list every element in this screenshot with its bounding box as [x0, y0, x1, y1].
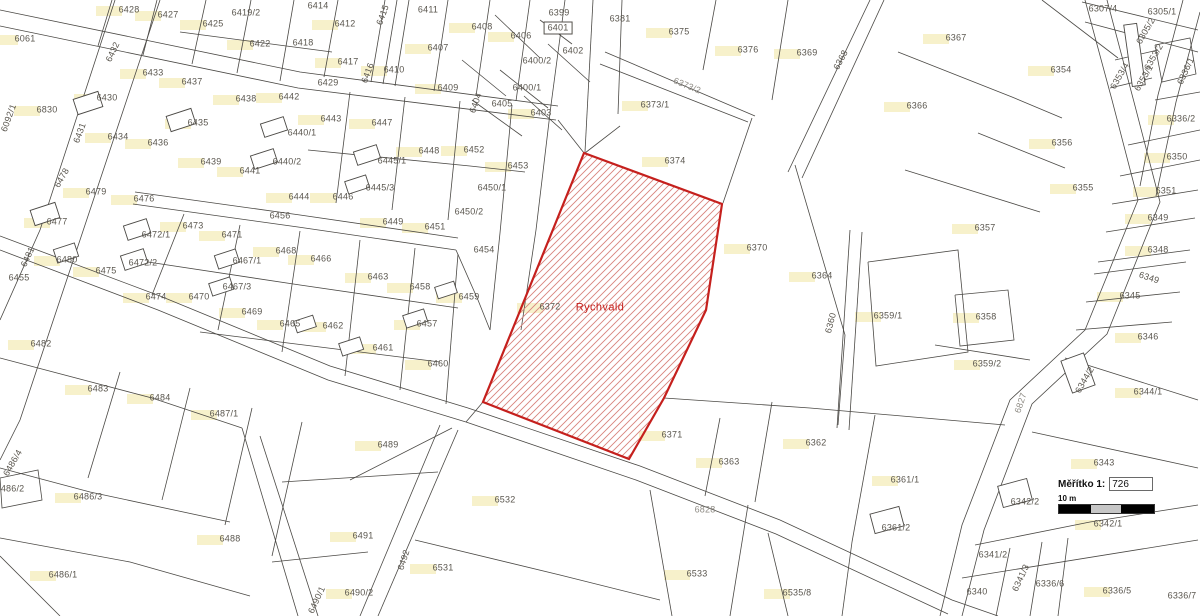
parcel-number-label: 6416	[360, 62, 376, 85]
parcel-number-label: 6092/1	[0, 103, 18, 133]
parcel-number-label: 6469	[242, 308, 263, 317]
parcel-number-label: 6478	[53, 167, 71, 190]
parcel-number-label: 6366	[907, 102, 928, 111]
parcel-number-label: 6305/2	[1135, 16, 1157, 45]
parcel-number-label: 6336/5	[1103, 587, 1132, 596]
parcel-number-label: 6463	[368, 273, 389, 282]
parcel-number-label: 6472/2	[129, 259, 158, 268]
scale-bar	[1058, 504, 1155, 514]
parcel-number-label: 6360	[824, 312, 838, 334]
scale-bar-segment	[1091, 505, 1121, 513]
parcel-number-label: 6456	[270, 212, 291, 221]
parcel-number-label: 6462	[323, 322, 344, 331]
parcel-number-label: 6446	[333, 193, 354, 202]
parcel-number-label: 6453	[508, 162, 529, 171]
parcel-number-label: 6344/1	[1134, 388, 1163, 397]
parcel-number-label: 6405	[492, 100, 513, 109]
scale-label: Měřítko 1:	[1058, 479, 1105, 490]
parcel-number-label: 6440/1	[288, 129, 317, 138]
parcel-number-label: 6471	[222, 231, 243, 240]
parcel-number-label: 6445/3	[366, 184, 395, 193]
parcel-number-label: 6344/2	[1074, 365, 1096, 394]
parcel-number-label: 6454	[474, 246, 495, 255]
parcel-number-label: 6336/7	[1168, 592, 1197, 601]
parcel-number-label: 6443	[321, 115, 342, 124]
parcel-number-label: 6363	[719, 458, 740, 467]
parcel-number-label: 6414	[308, 2, 329, 11]
parcel-number-label: 6345	[1120, 292, 1141, 301]
parcel-number-label: 6361/1	[891, 476, 920, 485]
parcel-number-label: 6415	[375, 4, 391, 27]
parcel-number-label: 6061	[15, 35, 36, 44]
parcel-number-label: 6349	[1148, 214, 1169, 223]
parcel-number-label: 6441	[240, 167, 261, 176]
parcel-number-label: 6401	[544, 22, 573, 35]
parcel-number-label: 6430	[97, 94, 118, 103]
parcel-number-label: 6460	[428, 360, 449, 369]
parcel-number-label: 6435	[188, 119, 209, 128]
parcel-number-label: 6491	[353, 532, 374, 541]
parcel-number-label: 6368	[832, 49, 850, 72]
parcel-number-label: 6482	[31, 340, 52, 349]
parcel-number-label: 6490/2	[345, 589, 374, 598]
parcel-number-label: 6427	[158, 11, 179, 20]
parcel-number-label: 6472/1	[142, 231, 171, 240]
parcel-number-label: 6489	[378, 441, 399, 450]
parcel-number-label: 6455	[9, 274, 30, 283]
parcel-number-label: 6458	[410, 283, 431, 292]
parcel-number-label: 6417	[338, 58, 359, 67]
parcel-number-label: 6419/2	[232, 9, 261, 18]
parcel-number-label: 6406	[511, 32, 532, 41]
parcel-number-label: 6373/2	[672, 76, 702, 95]
parcel-number-label: 6431	[72, 122, 88, 145]
parcel-number-label: 6381	[610, 15, 631, 24]
parcel-number-label: 6400/1	[513, 84, 542, 93]
parcel-number-label: 6371	[662, 431, 683, 440]
parcel-number-label: 6305/1	[1148, 8, 1177, 17]
parcel-number-label: 6372	[540, 303, 561, 312]
parcel-number-label: 6364	[812, 272, 833, 281]
parcel-number-label: 6408	[472, 23, 493, 32]
parcel-number-label: 6376	[738, 46, 759, 55]
scale-value-input[interactable]: 726	[1109, 477, 1153, 491]
parcel-number-label: 6418	[293, 39, 314, 48]
parcel-number-label: 6481	[20, 246, 37, 269]
parcel-number-label: 6486/4	[2, 448, 24, 477]
parcel-number-label: 6374	[665, 157, 686, 166]
parcel-number-label: 6404	[468, 92, 484, 115]
parcel-number-label: 6433	[143, 69, 164, 78]
parcel-number-label: 6448	[419, 147, 440, 156]
parcel-number-label: 6375	[669, 28, 690, 37]
parcel-number-label: 6828	[695, 506, 716, 515]
parcel-number-label: 6488	[220, 535, 241, 544]
parcel-number-label: 6422	[250, 40, 271, 49]
parcel-number-label: 6410	[384, 66, 405, 75]
parcel-number-label: 6336/1	[1176, 56, 1196, 86]
parcel-number-label: 6341/2	[979, 551, 1008, 560]
parcel-number-label: 6445/1	[378, 157, 407, 166]
parcel-number-label: 6487/1	[210, 410, 239, 419]
parcel-number-label: 6348	[1148, 246, 1169, 255]
parcel-number-label: 6341/3	[1011, 563, 1031, 593]
parcel-number-label: 6359/2	[973, 360, 1002, 369]
parcel-number-label: 6830	[37, 106, 58, 115]
parcel-number-label: 6450/1	[478, 184, 507, 193]
scale-bar-segment	[1121, 505, 1154, 513]
parcel-number-label: 6346	[1138, 333, 1159, 342]
parcel-number-label: 6432	[105, 41, 122, 64]
parcel-number-label: 6403	[531, 109, 552, 118]
parcel-number-label: 6467/1	[233, 257, 262, 266]
parcel-number-label: 6532	[495, 496, 516, 505]
parcel-number-label: 6442	[279, 93, 300, 102]
parcel-number-label: 6307/4	[1089, 5, 1118, 14]
parcel-number-label: 6439	[201, 158, 222, 167]
area-name-label: Rychvald	[576, 303, 624, 314]
parcel-number-label: 6373/1	[641, 101, 670, 110]
parcel-number-label: 6467/3	[223, 283, 252, 292]
parcel-labels-layer: 606168306092/16428642764256419/264226432…	[0, 0, 1200, 616]
parcel-number-label: 6399	[549, 9, 570, 18]
parcel-number-label: 6486/3	[74, 493, 103, 502]
parcel-number-label: 6470	[189, 293, 210, 302]
parcel-number-label: 6358	[976, 313, 997, 322]
parcel-number-label: 6342/1	[1094, 520, 1123, 529]
parcel-number-label: 6457	[417, 320, 438, 329]
parcel-number-label: 6484	[150, 394, 171, 403]
parcel-number-label: 6353/1	[1133, 63, 1155, 92]
parcel-number-label: 6827	[1014, 392, 1029, 415]
parcel-number-label: 6480	[57, 256, 78, 265]
parcel-number-label: 6349	[1138, 271, 1161, 286]
parcel-number-label: 6412	[335, 20, 356, 29]
parcel-number-label: 6357	[975, 224, 996, 233]
parcel-number-label: 6490/1	[307, 585, 327, 615]
parcel-number-label: 6479	[86, 188, 107, 197]
parcel-number-label: 6361/2	[882, 524, 911, 533]
parcel-number-label: 6533	[687, 570, 708, 579]
parcel-number-label: 6531	[433, 564, 454, 573]
parcel-number-label: 6449	[383, 218, 404, 227]
parcel-number-label: 6436	[148, 139, 169, 148]
scale-bar-segment	[1059, 505, 1091, 513]
parcel-number-label: 6466	[311, 255, 332, 264]
parcel-number-label: 6429	[318, 79, 339, 88]
parcel-number-label: 6476	[134, 195, 155, 204]
parcel-number-label: 6407	[428, 44, 449, 53]
parcel-number-label: 6354	[1051, 66, 1072, 75]
parcel-number-label: 6474	[146, 293, 167, 302]
parcel-number-label: 6450/2	[455, 208, 484, 217]
parcel-number-label: 6486/1	[49, 571, 78, 580]
parcel-number-label: 6353/4	[1109, 61, 1131, 90]
parcel-number-label: 6355	[1073, 184, 1094, 193]
parcel-number-label: 6425	[203, 20, 224, 29]
parcel-number-label: 6356	[1052, 139, 1073, 148]
parcel-number-label: 6359/1	[874, 312, 903, 321]
parcel-number-label: 6367	[946, 34, 967, 43]
scale-bar-length-label: 10 m	[1058, 494, 1162, 503]
parcel-number-label: 6477	[47, 218, 68, 227]
parcel-number-label: 6342/2	[1011, 498, 1040, 507]
parcel-number-label: 6447	[372, 119, 393, 128]
parcel-number-label: 6409	[438, 84, 459, 93]
parcel-number-label: 6336/6	[1036, 580, 1065, 589]
parcel-number-label: 6369	[797, 49, 818, 58]
parcel-number-label: 6452	[464, 146, 485, 155]
parcel-number-label: 6465	[280, 320, 301, 329]
parcel-number-label: 6461	[373, 344, 394, 353]
parcel-number-label: 6483	[88, 385, 109, 394]
parcel-number-label: 6370	[747, 244, 768, 253]
parcel-number-label: 6473	[183, 222, 204, 231]
parcel-number-label: 6340	[967, 588, 988, 597]
parcel-number-label: 6486/2	[0, 485, 24, 494]
scale-widget: Měřítko 1: 726 10 m	[1058, 477, 1162, 514]
parcel-number-label: 6400/2	[523, 57, 552, 66]
parcel-number-label: 6411	[418, 6, 438, 15]
parcel-number-label: 6535/8	[783, 589, 812, 598]
parcel-number-label: 6350	[1167, 153, 1188, 162]
parcel-number-label: 6468	[276, 247, 297, 256]
parcel-number-label: 6434	[108, 133, 129, 142]
parcel-number-label: 6459	[459, 293, 480, 302]
parcel-number-label: 6402	[563, 47, 584, 56]
parcel-number-label: 6492	[397, 549, 412, 572]
cadastral-map-canvas[interactable]: 606168306092/16428642764256419/264226432…	[0, 0, 1200, 616]
parcel-number-label: 6475	[96, 267, 117, 276]
parcel-number-label: 6438	[236, 95, 257, 104]
parcel-number-label: 6362	[806, 439, 827, 448]
parcel-number-label: 6343	[1094, 459, 1115, 468]
parcel-number-label: 6428	[119, 6, 140, 15]
parcel-number-label: 6437	[182, 78, 203, 87]
parcel-number-label: 6336/2	[1167, 115, 1196, 124]
parcel-number-label: 6444	[289, 193, 310, 202]
parcel-number-label: 6440/2	[273, 158, 302, 167]
parcel-number-label: 6351	[1156, 187, 1177, 196]
parcel-number-label: 6451	[425, 223, 446, 232]
